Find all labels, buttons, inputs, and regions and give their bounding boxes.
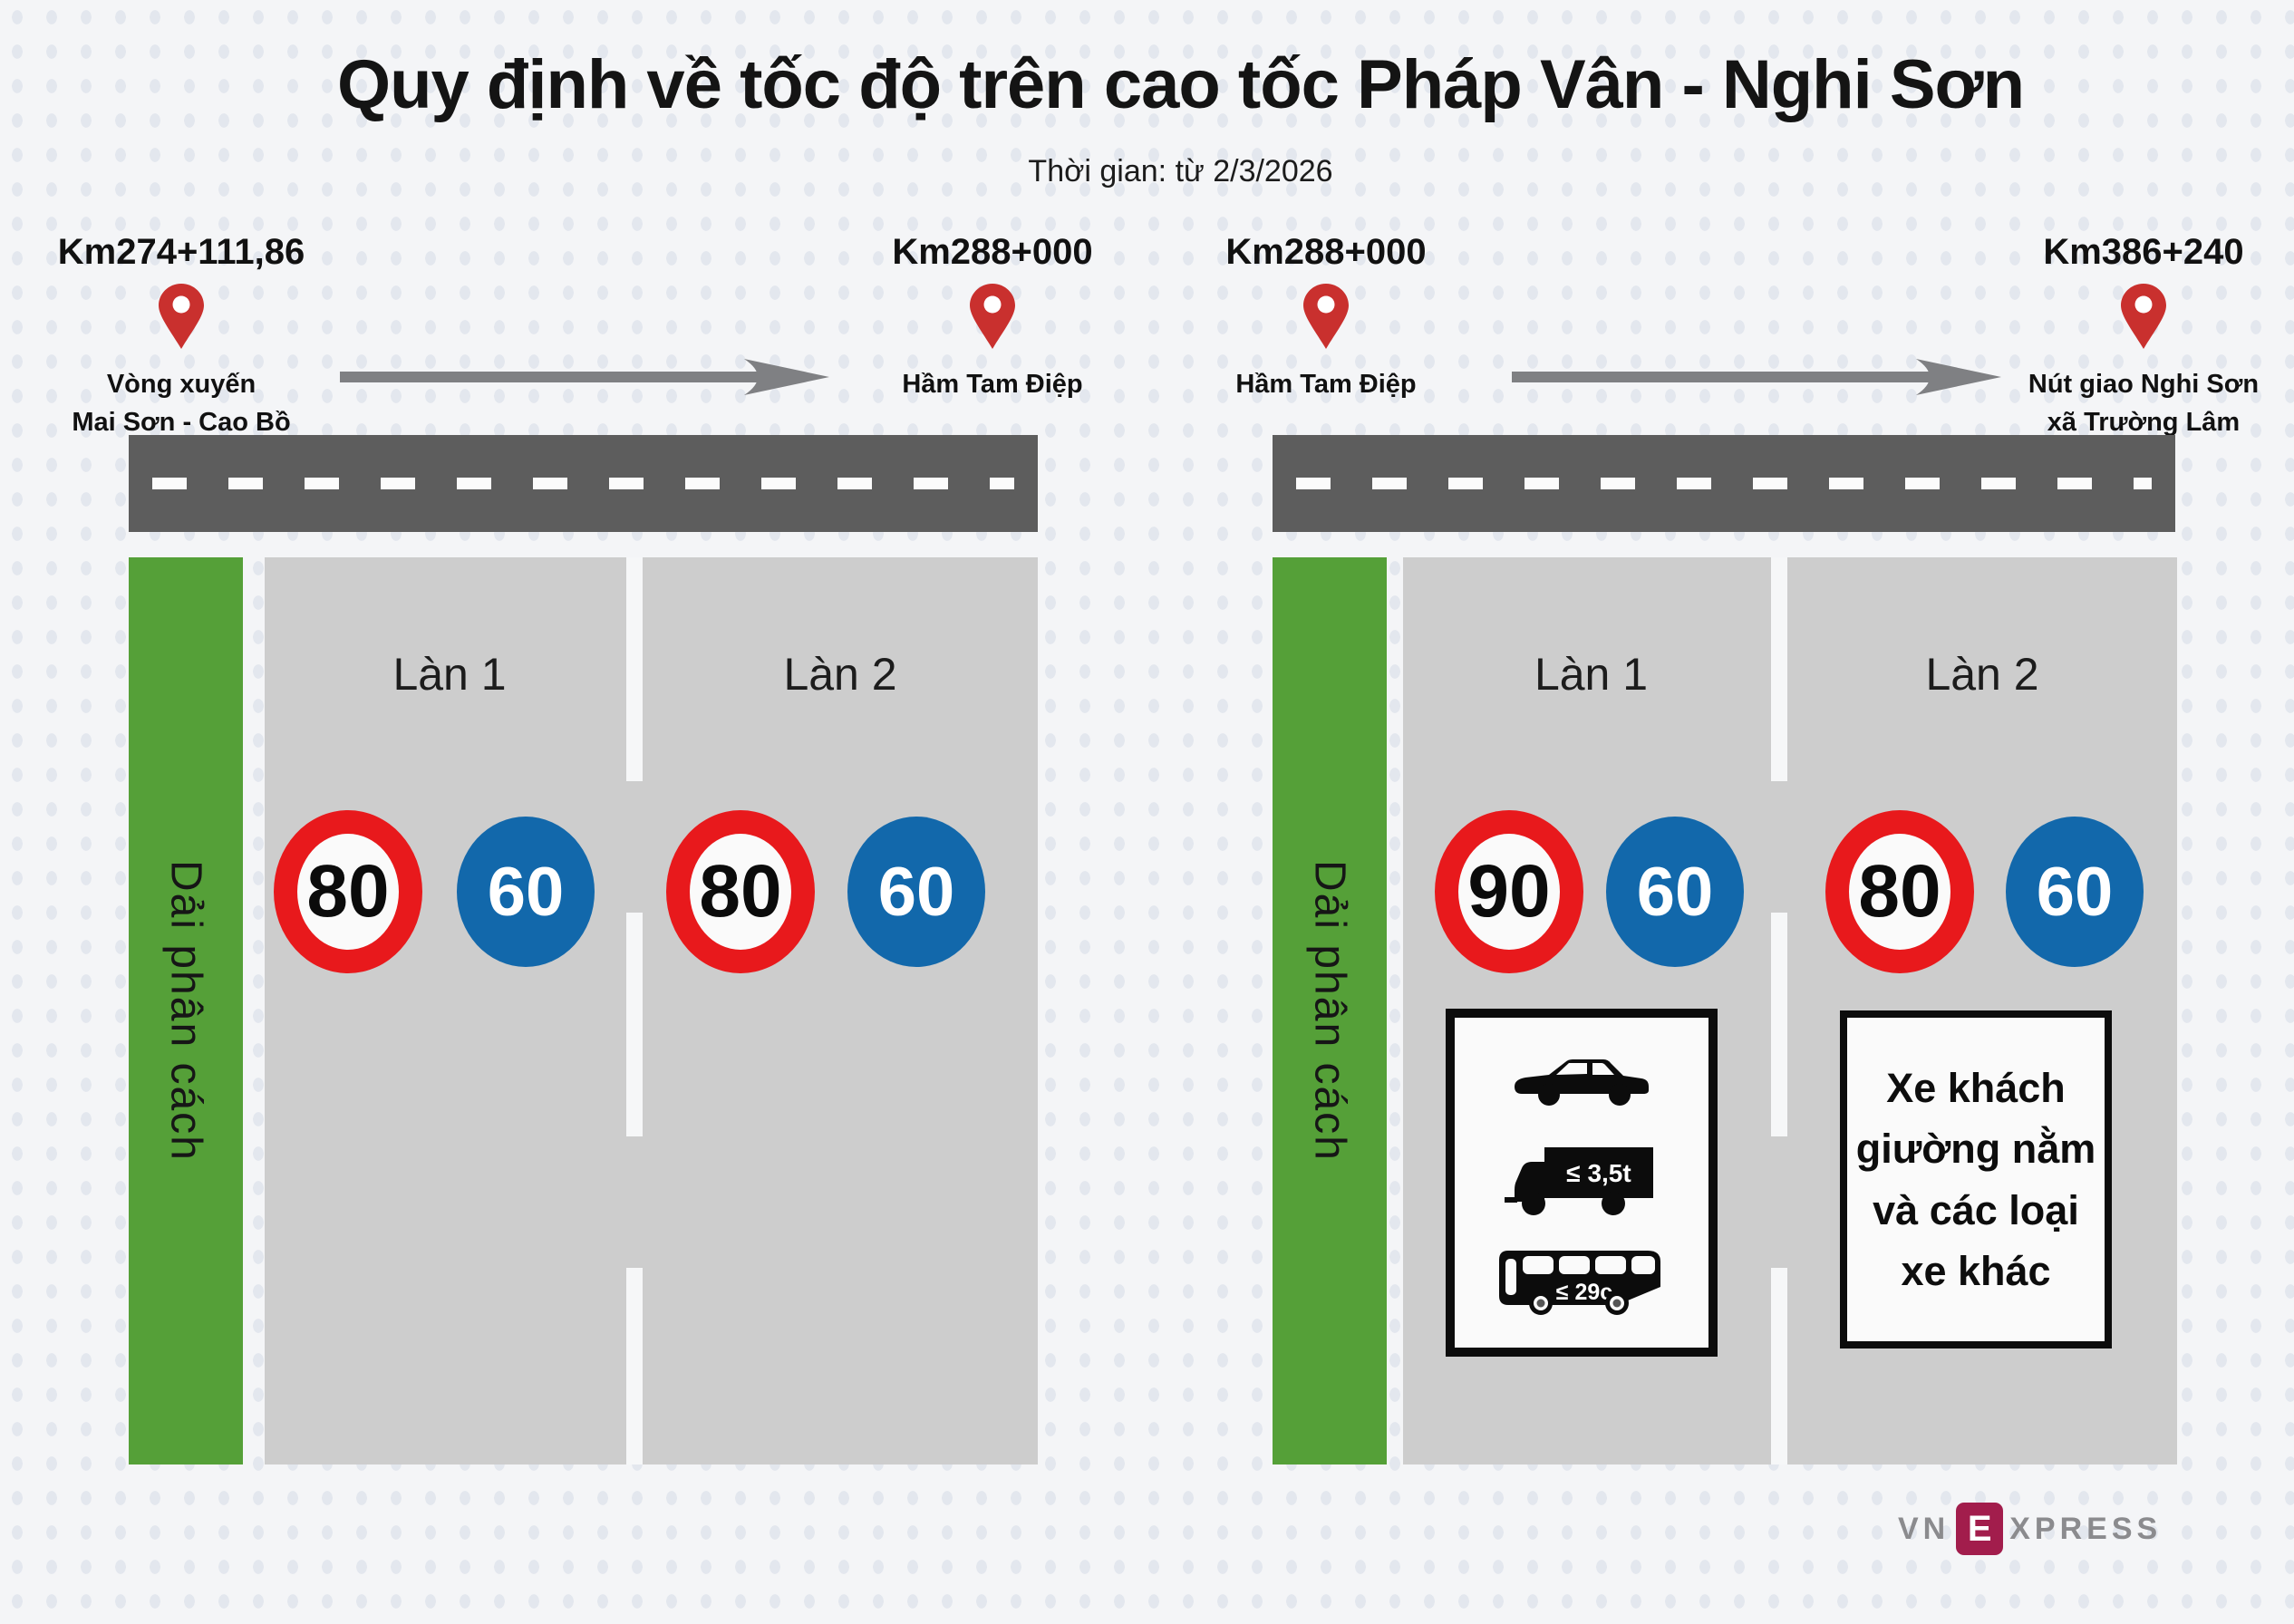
map-pin-icon <box>2118 282 2169 351</box>
km-value: Km386+240 <box>2043 232 2243 273</box>
logo-vn-text: VN <box>1898 1512 1950 1547</box>
marker-label-line1: Vòng xuyến <box>72 365 290 403</box>
logo-e-badge: E <box>1956 1503 2003 1555</box>
road-center-dashes <box>152 478 1014 489</box>
max-speed-sign: 80 <box>1825 810 1974 973</box>
lane1-label: Làn 1 <box>1403 648 1779 701</box>
marker-label-line1: Nút giao Nghi Sơn <box>2028 365 2259 403</box>
truck-weight-limit: ≤ 3,5t <box>1566 1159 1631 1187</box>
logo-xpress-text: XPRESS <box>2009 1512 2162 1547</box>
car-icon <box>1509 1050 1654 1114</box>
marker-label: Hầm Tam Điệp <box>902 365 1082 403</box>
max-speed-sign: 80 <box>274 810 422 973</box>
bus-icon: ≤ 29c <box>1495 1247 1668 1316</box>
km-marker-start-left: Km274+111,86 Vòng xuyến Mai Sơn - Cao Bồ <box>9 232 353 441</box>
marker-label: Nút giao Nghi Sơn xã Trường Lâm <box>2028 365 2259 441</box>
max-speed-sign: 90 <box>1435 810 1583 973</box>
marker-label: Hầm Tam Điệp <box>1235 365 1416 403</box>
page-subtitle: Thời gian: từ 2/3/2026 <box>34 154 2294 189</box>
vnexpress-logo: VN E XPRESS <box>1898 1503 2162 1555</box>
marker-label-line1: Hầm Tam Điệp <box>1235 365 1416 403</box>
map-pin-icon <box>967 282 1018 351</box>
km-value: Km288+000 <box>1225 232 1426 273</box>
vehicle-types-sign: ≤ 3,5t ≤ 29c <box>1446 1009 1718 1357</box>
lane1-label: Làn 1 <box>265 648 634 701</box>
other-vehicles-sign: Xe khách giường nằm và các loại xe khác <box>1840 1010 2112 1348</box>
median-label: Dải phân cách <box>1305 860 1355 1162</box>
min-speed-sign: 60 <box>1606 817 1744 967</box>
min-speed-sign: 60 <box>2006 817 2144 967</box>
direction-arrow-icon <box>340 359 829 395</box>
infographic-canvas: Quy định về tốc độ trên cao tốc Pháp Vân… <box>0 0 2294 1624</box>
min-speed-sign: 60 <box>457 817 595 967</box>
note-line2: giường nằm <box>1856 1118 2096 1180</box>
km-marker-start-right: Km288+000 Hầm Tam Điệp <box>1154 232 1498 403</box>
min-speed-sign: 60 <box>847 817 985 967</box>
bus-seat-limit: ≤ 29c <box>1556 1280 1612 1305</box>
lane2-label: Làn 2 <box>1787 648 2177 701</box>
median-strip-right: Dải phân cách <box>1273 557 1387 1464</box>
marker-label-line1: Hầm Tam Điệp <box>902 365 1082 403</box>
lane-area-right-section: Làn 1 Làn 2 90 60 80 60 ≤ 3,5t <box>1403 557 2177 1464</box>
km-value: Km288+000 <box>892 232 1092 273</box>
median-label: Dải phân cách <box>161 860 211 1162</box>
marker-label: Vòng xuyến Mai Sơn - Cao Bồ <box>72 365 290 441</box>
km-marker-end-left: Km288+000 Hầm Tam Điệp <box>820 232 1165 403</box>
note-line1: Xe khách <box>1886 1058 2066 1119</box>
page-title: Quy định về tốc độ trên cao tốc Pháp Vân… <box>34 45 2294 124</box>
map-pin-icon <box>1301 282 1351 351</box>
lane-area-left-section: Làn 1 Làn 2 80 60 80 60 <box>265 557 1038 1464</box>
max-speed-sign: 80 <box>666 810 815 973</box>
note-line3: và các loại <box>1873 1180 2079 1242</box>
km-marker-end-right: Km386+240 Nút giao Nghi Sơn xã Trường Lâ… <box>1971 232 2294 441</box>
note-line4: xe khác <box>1901 1241 2050 1302</box>
map-pin-icon <box>156 282 207 351</box>
median-strip-left: Dải phân cách <box>129 557 243 1464</box>
road-segment-right <box>1273 435 2175 532</box>
km-value: Km274+111,86 <box>58 232 305 273</box>
road-center-dashes <box>1296 478 2152 489</box>
lane2-label: Làn 2 <box>643 648 1038 701</box>
direction-arrow-icon <box>1512 359 2001 395</box>
road-segment-left <box>129 435 1038 532</box>
truck-icon: ≤ 3,5t <box>1505 1142 1659 1218</box>
